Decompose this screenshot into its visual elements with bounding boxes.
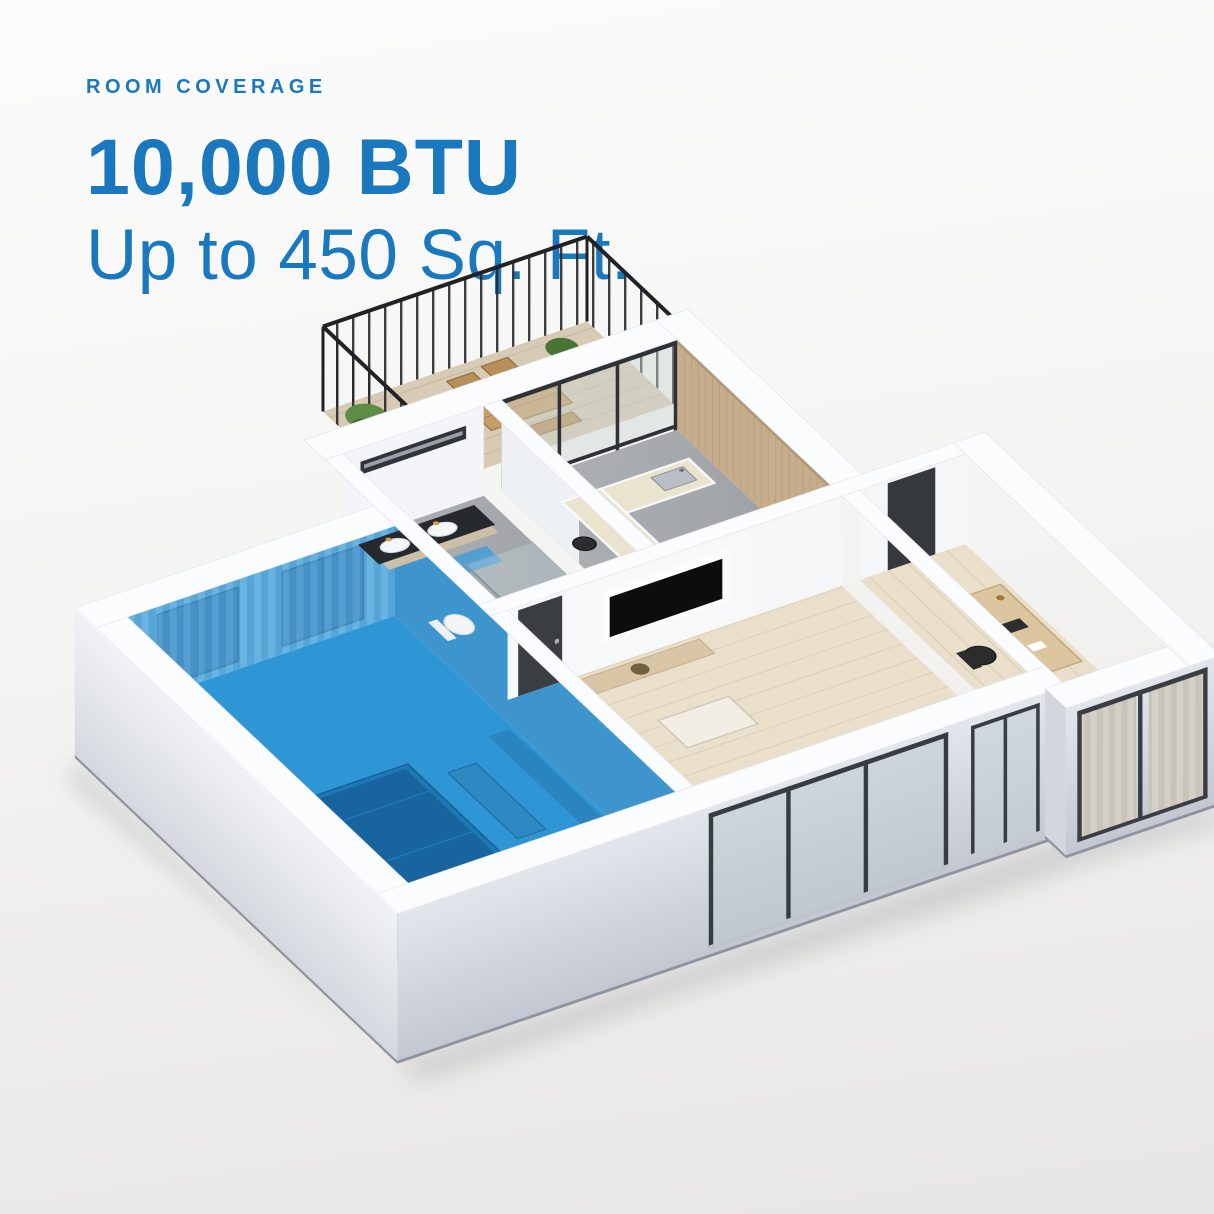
page: ROOM COVERAGE 10,000 BTU Up to 450 Sq. F…: [0, 0, 1214, 1214]
floor-plan-illustration: [0, 0, 1214, 1214]
front-wall-hall-glass: [960, 692, 1048, 872]
office-step-wall: [1045, 689, 1066, 859]
